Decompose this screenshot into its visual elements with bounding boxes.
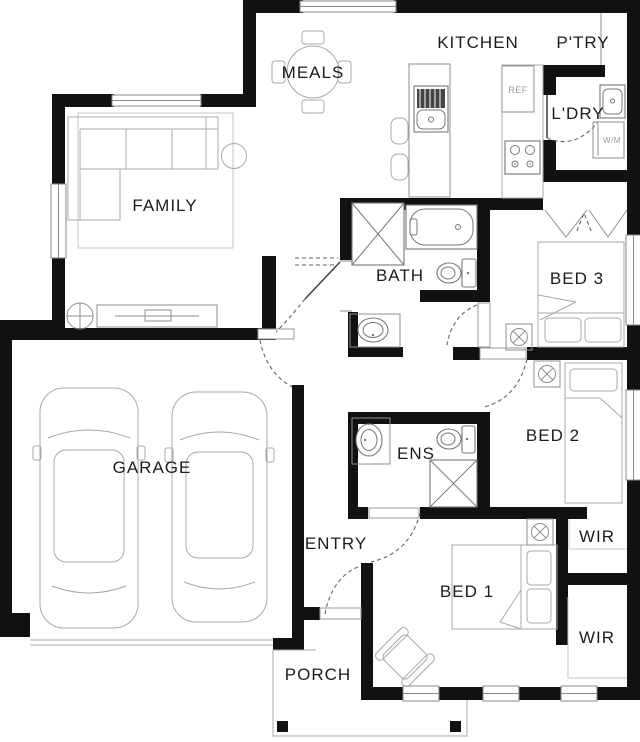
label-family: FAMILY: [132, 196, 197, 215]
label-garage: GARAGE: [113, 458, 192, 477]
wall-segment: [200, 94, 256, 107]
wall-segment: [543, 170, 627, 182]
fridge-space: REF: [502, 66, 534, 112]
floor-plan: REF W/M: [0, 0, 640, 742]
garage-door-internal: [258, 329, 294, 339]
washer-label: W/M: [603, 136, 621, 145]
label-bath: BATH: [376, 266, 424, 285]
window-family-north: [112, 95, 201, 106]
cooktop: [505, 141, 540, 174]
wall-segment: [420, 290, 477, 302]
label-bed3: BED 3: [550, 269, 604, 288]
wall-segment: [477, 198, 490, 302]
wall-segment: [0, 613, 30, 637]
wall-segment: [292, 385, 304, 607]
family-door-swing: [276, 299, 305, 332]
ens-door: [369, 508, 419, 518]
floor-plan-canvas: REF W/M: [0, 0, 640, 742]
ens-toilet: [437, 426, 475, 453]
tv-unit: [97, 305, 217, 327]
car: [33, 388, 145, 628]
label-bed2: BED 2: [526, 426, 580, 445]
wall-segment: [348, 347, 403, 357]
wall-segment: [556, 573, 640, 585]
label-meals: MEALS: [282, 63, 345, 82]
washing-machine: W/M: [593, 122, 624, 158]
garage-door-swing: [260, 340, 292, 387]
toilet: [437, 259, 476, 287]
rug: [78, 113, 233, 248]
window-bed1-b: [483, 686, 519, 701]
island-sink: [414, 86, 448, 132]
label-laundry: L'DRY: [551, 104, 604, 123]
bed1-furniture: [374, 519, 557, 688]
front-door: [320, 608, 361, 619]
wall-segment: [12, 328, 276, 340]
armchair: [374, 626, 436, 688]
robe-light-symbol: [534, 361, 560, 387]
ens-shower: [430, 460, 477, 507]
laundry-door-swing: [547, 122, 598, 142]
wall-segment: [292, 607, 320, 620]
porch-post: [277, 721, 288, 732]
robe-light-symbol: [506, 324, 532, 350]
wall-segment: [340, 198, 352, 260]
bed2-door-swing: [484, 359, 527, 407]
bar-stool: [391, 118, 408, 144]
car: [165, 392, 274, 622]
garage-contents: [30, 388, 274, 645]
family-room-furniture: [67, 113, 247, 329]
label-porch: PORCH: [285, 665, 351, 684]
window-bed2: [626, 390, 640, 480]
wall-segment: [52, 94, 65, 184]
front-door-swing: [325, 566, 360, 614]
wall-segment: [243, 0, 256, 103]
wall-segment: [527, 347, 627, 360]
wall-segment: [0, 320, 12, 637]
wall-segment: [543, 77, 556, 95]
bed3-door: [478, 303, 490, 347]
window-bed1-a: [403, 686, 439, 701]
window-meals: [300, 1, 396, 12]
bathtub: [406, 205, 477, 249]
side-table: [222, 144, 247, 169]
wall-segment: [627, 0, 640, 700]
wall-segment: [361, 563, 373, 700]
label-ens: ENS: [397, 444, 435, 463]
label-wir-lower: WIR: [579, 628, 615, 647]
garage-roller-door: [30, 640, 273, 645]
robe-light-symbol: [527, 519, 553, 545]
bed3-bed: [538, 242, 624, 347]
window-wir-south: [561, 686, 597, 701]
bar-stool: [391, 154, 408, 180]
label-bed1: BED 1: [440, 582, 494, 601]
ceiling-fan-icon: [67, 303, 93, 329]
wall-segment: [477, 507, 587, 519]
fridge-label: REF: [508, 85, 528, 95]
bifold-robe-doors: [545, 210, 627, 237]
wall-segment: [243, 0, 303, 13]
window-bed3: [626, 235, 640, 325]
shower: [352, 203, 404, 265]
bed3-door-swing: [447, 305, 477, 345]
label-entry: ENTRY: [305, 534, 367, 553]
wall-segment: [348, 507, 368, 519]
window-family-west: [51, 184, 66, 258]
wall-segment: [394, 0, 640, 13]
wall-segment: [420, 507, 477, 519]
wall-segment: [477, 412, 490, 517]
label-kitchen: KITCHEN: [437, 33, 519, 52]
dining-chair: [302, 100, 324, 113]
ens-door-swing: [371, 513, 420, 562]
wall-segment: [262, 256, 276, 340]
wall-segment: [273, 638, 304, 650]
wall-segment: [453, 347, 480, 360]
wall-segment: [543, 65, 605, 77]
wall-segment: [556, 585, 568, 645]
dining-chair: [302, 31, 324, 44]
porch-post: [450, 721, 461, 732]
label-pantry: P'TRY: [556, 33, 609, 52]
family-door-leaf: [305, 262, 340, 299]
kitchen-fixtures: REF: [391, 64, 543, 198]
label-wir-upper: WIR: [579, 527, 615, 546]
